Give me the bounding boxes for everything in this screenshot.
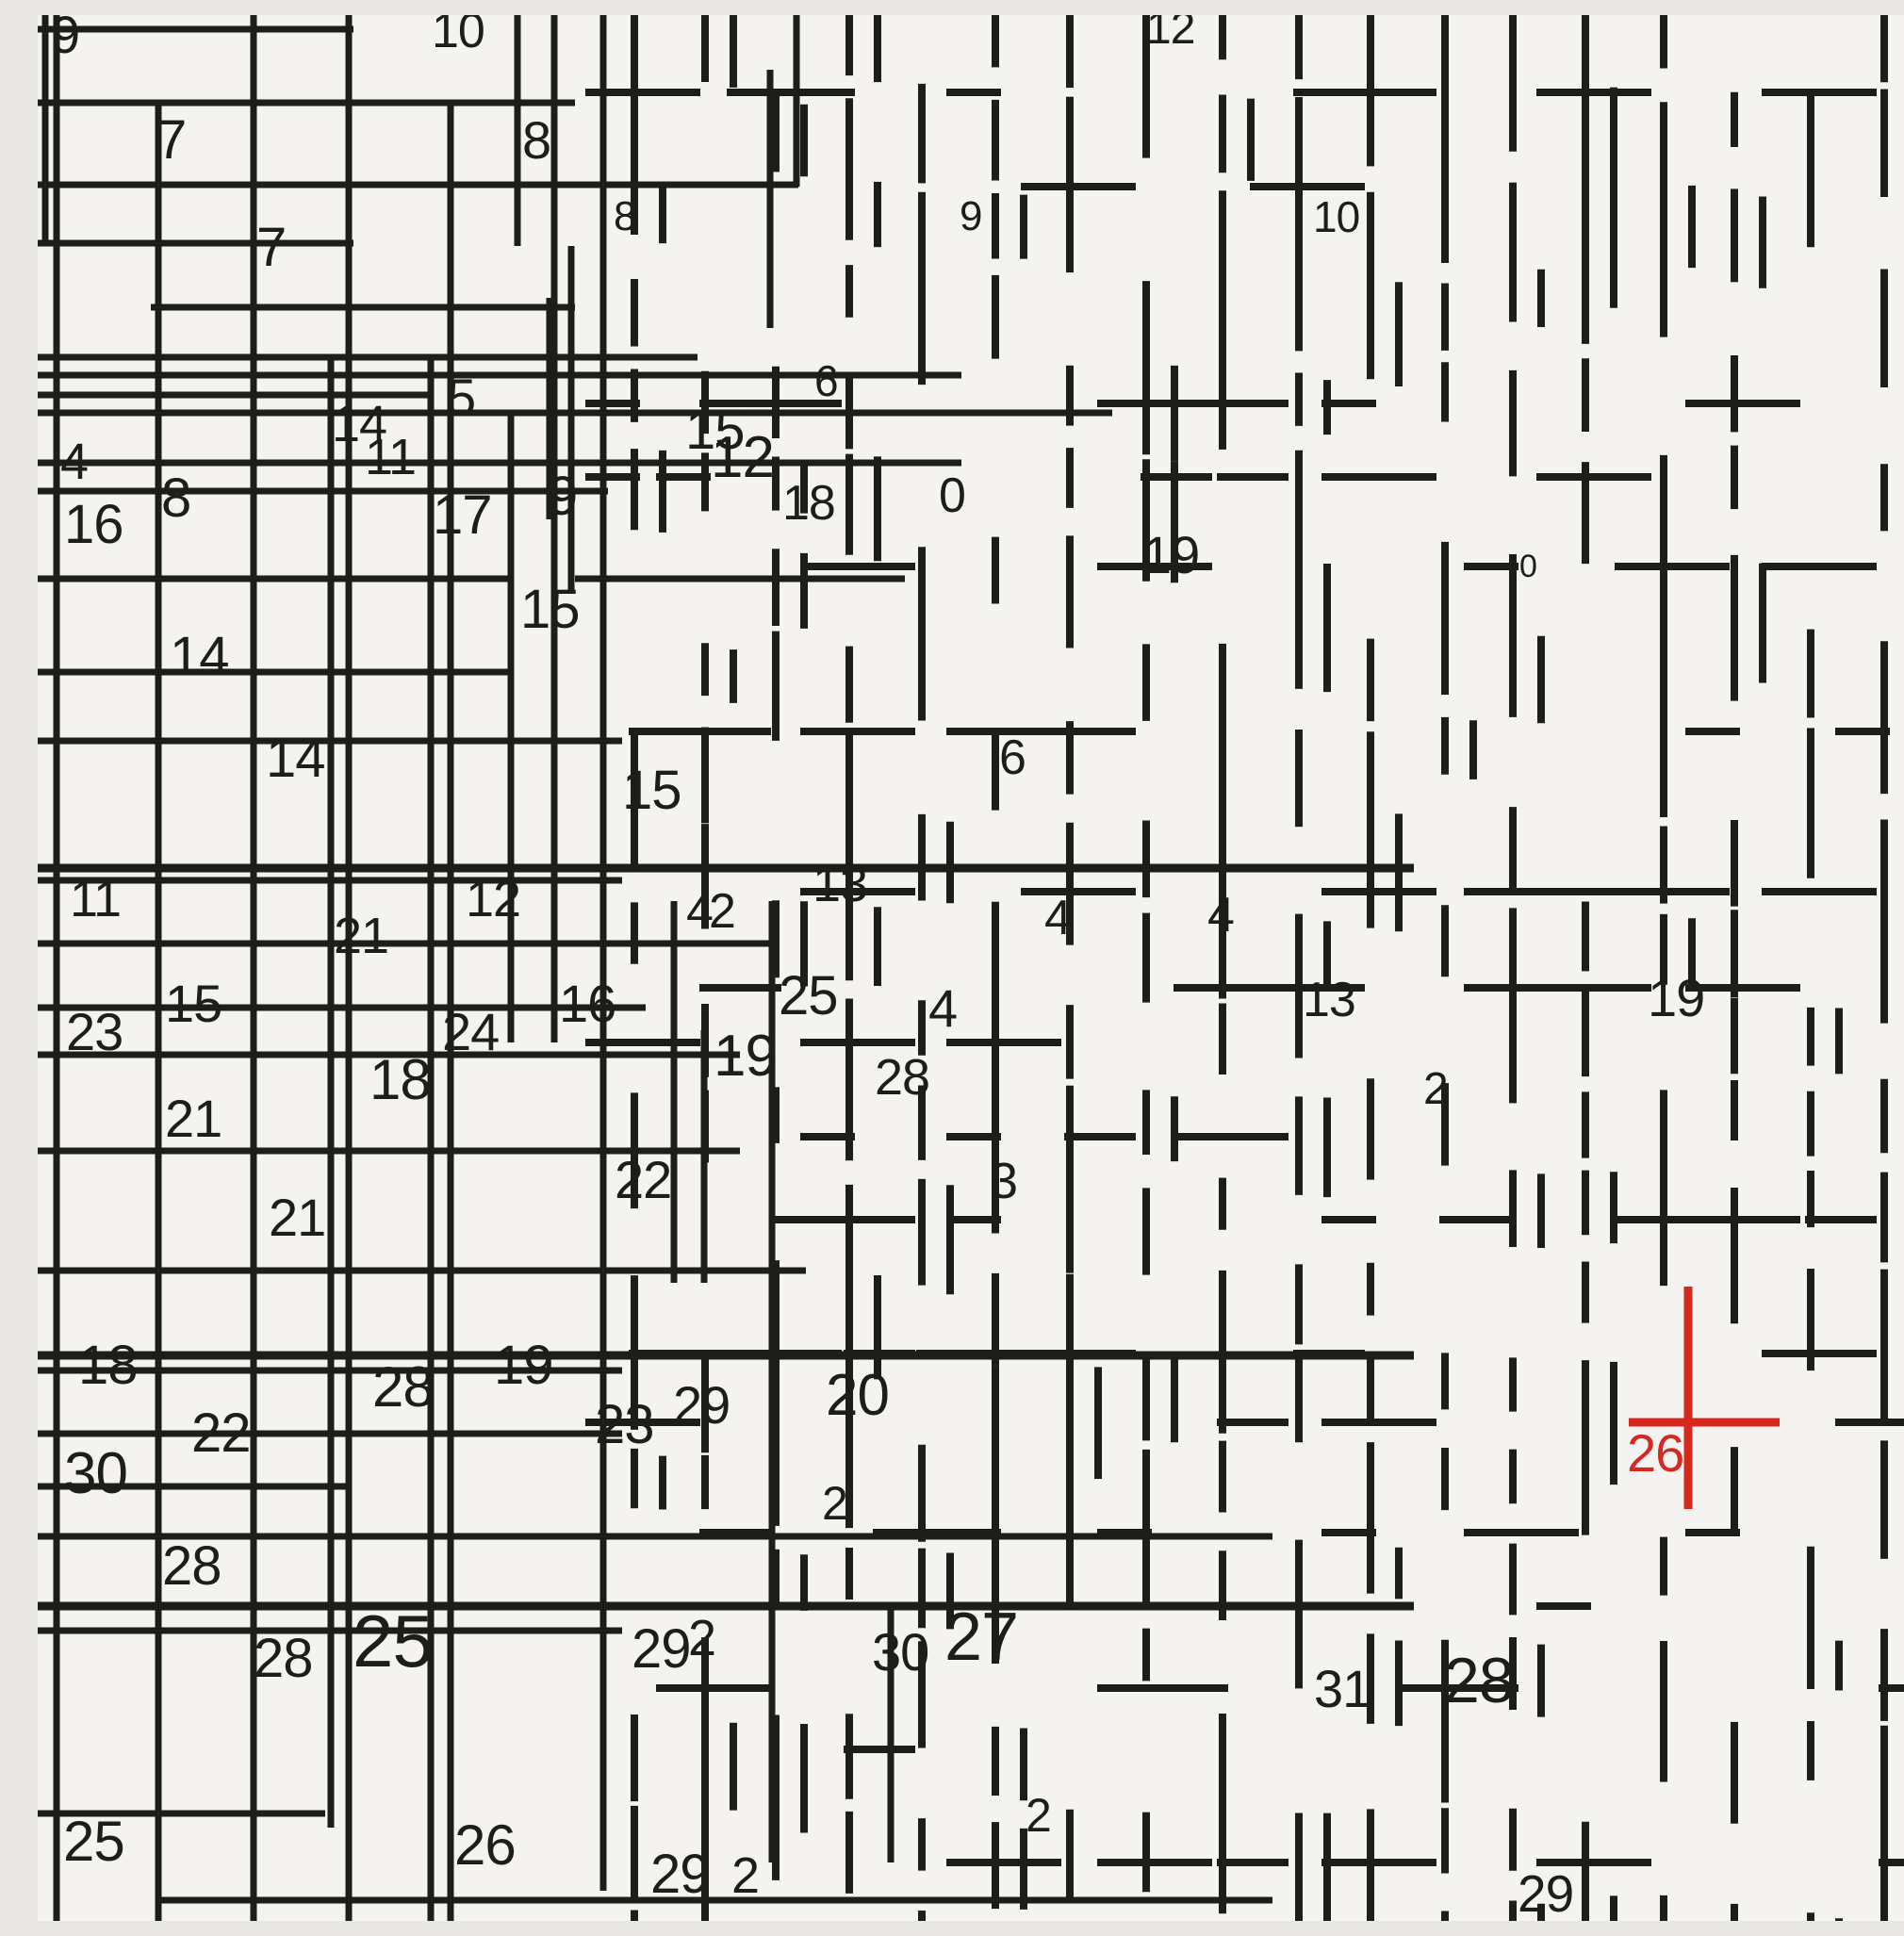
date-number: 11 <box>70 871 121 927</box>
date-number: 28 <box>162 1535 222 1597</box>
date-number: 2 <box>709 884 735 939</box>
date-number: 27 <box>944 1600 1018 1675</box>
date-number: 4 <box>60 434 88 490</box>
date-number: 14 <box>266 728 325 789</box>
date-number: 10 <box>1313 192 1359 241</box>
red-date-number: 26 <box>1627 1423 1683 1483</box>
date-number: 4 <box>1207 888 1234 943</box>
date-number: 29 <box>673 1375 730 1435</box>
date-number: 30 <box>872 1622 928 1682</box>
date-number: 21 <box>165 1089 222 1148</box>
date-number: 2 <box>822 1477 847 1530</box>
date-number: 9 <box>51 15 79 64</box>
date-number: 19 <box>1648 968 1704 1027</box>
date-number: 9 <box>548 466 577 527</box>
date-number: 28 <box>875 1049 929 1106</box>
date-number: 6 <box>999 730 1026 785</box>
date-number: 19 <box>714 1024 777 1089</box>
date-number: 23 <box>66 1002 123 1061</box>
date-number: 15 <box>165 974 222 1033</box>
date-number: 25 <box>63 1810 124 1873</box>
date-number: 21 <box>334 908 388 964</box>
date-number: 17 <box>433 484 492 546</box>
date-number: 7 <box>156 109 186 171</box>
date-number: 14 <box>170 626 229 687</box>
date-number: 18 <box>782 476 835 531</box>
date-number: 28 <box>1444 1645 1514 1716</box>
date-number: 29 <box>1518 1864 1573 1921</box>
date-number: 18 <box>369 1048 431 1111</box>
date-number: 13 <box>812 856 867 912</box>
date-number: 30 <box>64 1441 127 1506</box>
date-number: 9 <box>960 193 981 239</box>
date-number: 11 <box>365 429 416 485</box>
date-number: 24 <box>442 1002 499 1061</box>
art-canvas: 9101278891075614151112418017916819015141… <box>38 15 1904 1921</box>
date-number: 6 <box>814 356 838 405</box>
date-number: 22 <box>615 1150 671 1209</box>
date-number: 0 <box>1519 549 1536 584</box>
date-number: 8 <box>161 468 190 529</box>
date-number: 29 <box>650 1844 710 1905</box>
date-number: 8 <box>522 110 550 170</box>
date-number: 0 <box>939 468 965 523</box>
date-number: 12 <box>1146 15 1194 54</box>
date-number: 2 <box>688 1610 715 1666</box>
date-number: 31 <box>1314 1659 1371 1718</box>
date-number: 19 <box>494 1335 553 1396</box>
date-number: 2 <box>1423 1064 1448 1114</box>
date-number: 28 <box>372 1355 434 1419</box>
date-number: 15 <box>520 579 580 640</box>
date-number: 12 <box>466 871 520 927</box>
date-number: 25 <box>353 1600 433 1682</box>
date-number: 23 <box>595 1394 654 1455</box>
date-number: 21 <box>269 1188 325 1247</box>
date-number: 15 <box>622 760 681 821</box>
date-number: 16 <box>64 494 123 555</box>
date-number: 20 <box>826 1363 889 1428</box>
date-number: 7 <box>256 217 286 278</box>
calendar-artwork: 9101278891075614151112418017916819015141… <box>38 15 1904 1921</box>
date-number: 16 <box>559 974 616 1033</box>
date-number: 28 <box>254 1628 313 1689</box>
date-number: 5 <box>447 368 475 427</box>
date-number: 4 <box>928 978 957 1038</box>
date-number: 29 <box>632 1618 691 1680</box>
page: { "artwork": { "background": "#f4f3f1", … <box>0 15 1904 1921</box>
date-number: 25 <box>779 965 838 1026</box>
date-number: 3 <box>990 1153 1017 1209</box>
date-number: 22 <box>191 1403 251 1464</box>
date-number: 12 <box>711 425 774 490</box>
date-number: 2 <box>1026 1789 1051 1842</box>
date-number: 18 <box>78 1335 138 1396</box>
date-number: 4 <box>1044 891 1071 945</box>
date-number: 26 <box>454 1813 516 1877</box>
date-number: 19 <box>1142 525 1199 584</box>
date-number: 13 <box>1303 973 1355 1027</box>
date-number: 10 <box>432 15 484 58</box>
date-number: 2 <box>731 1847 759 1904</box>
date-number: 8 <box>614 193 635 239</box>
